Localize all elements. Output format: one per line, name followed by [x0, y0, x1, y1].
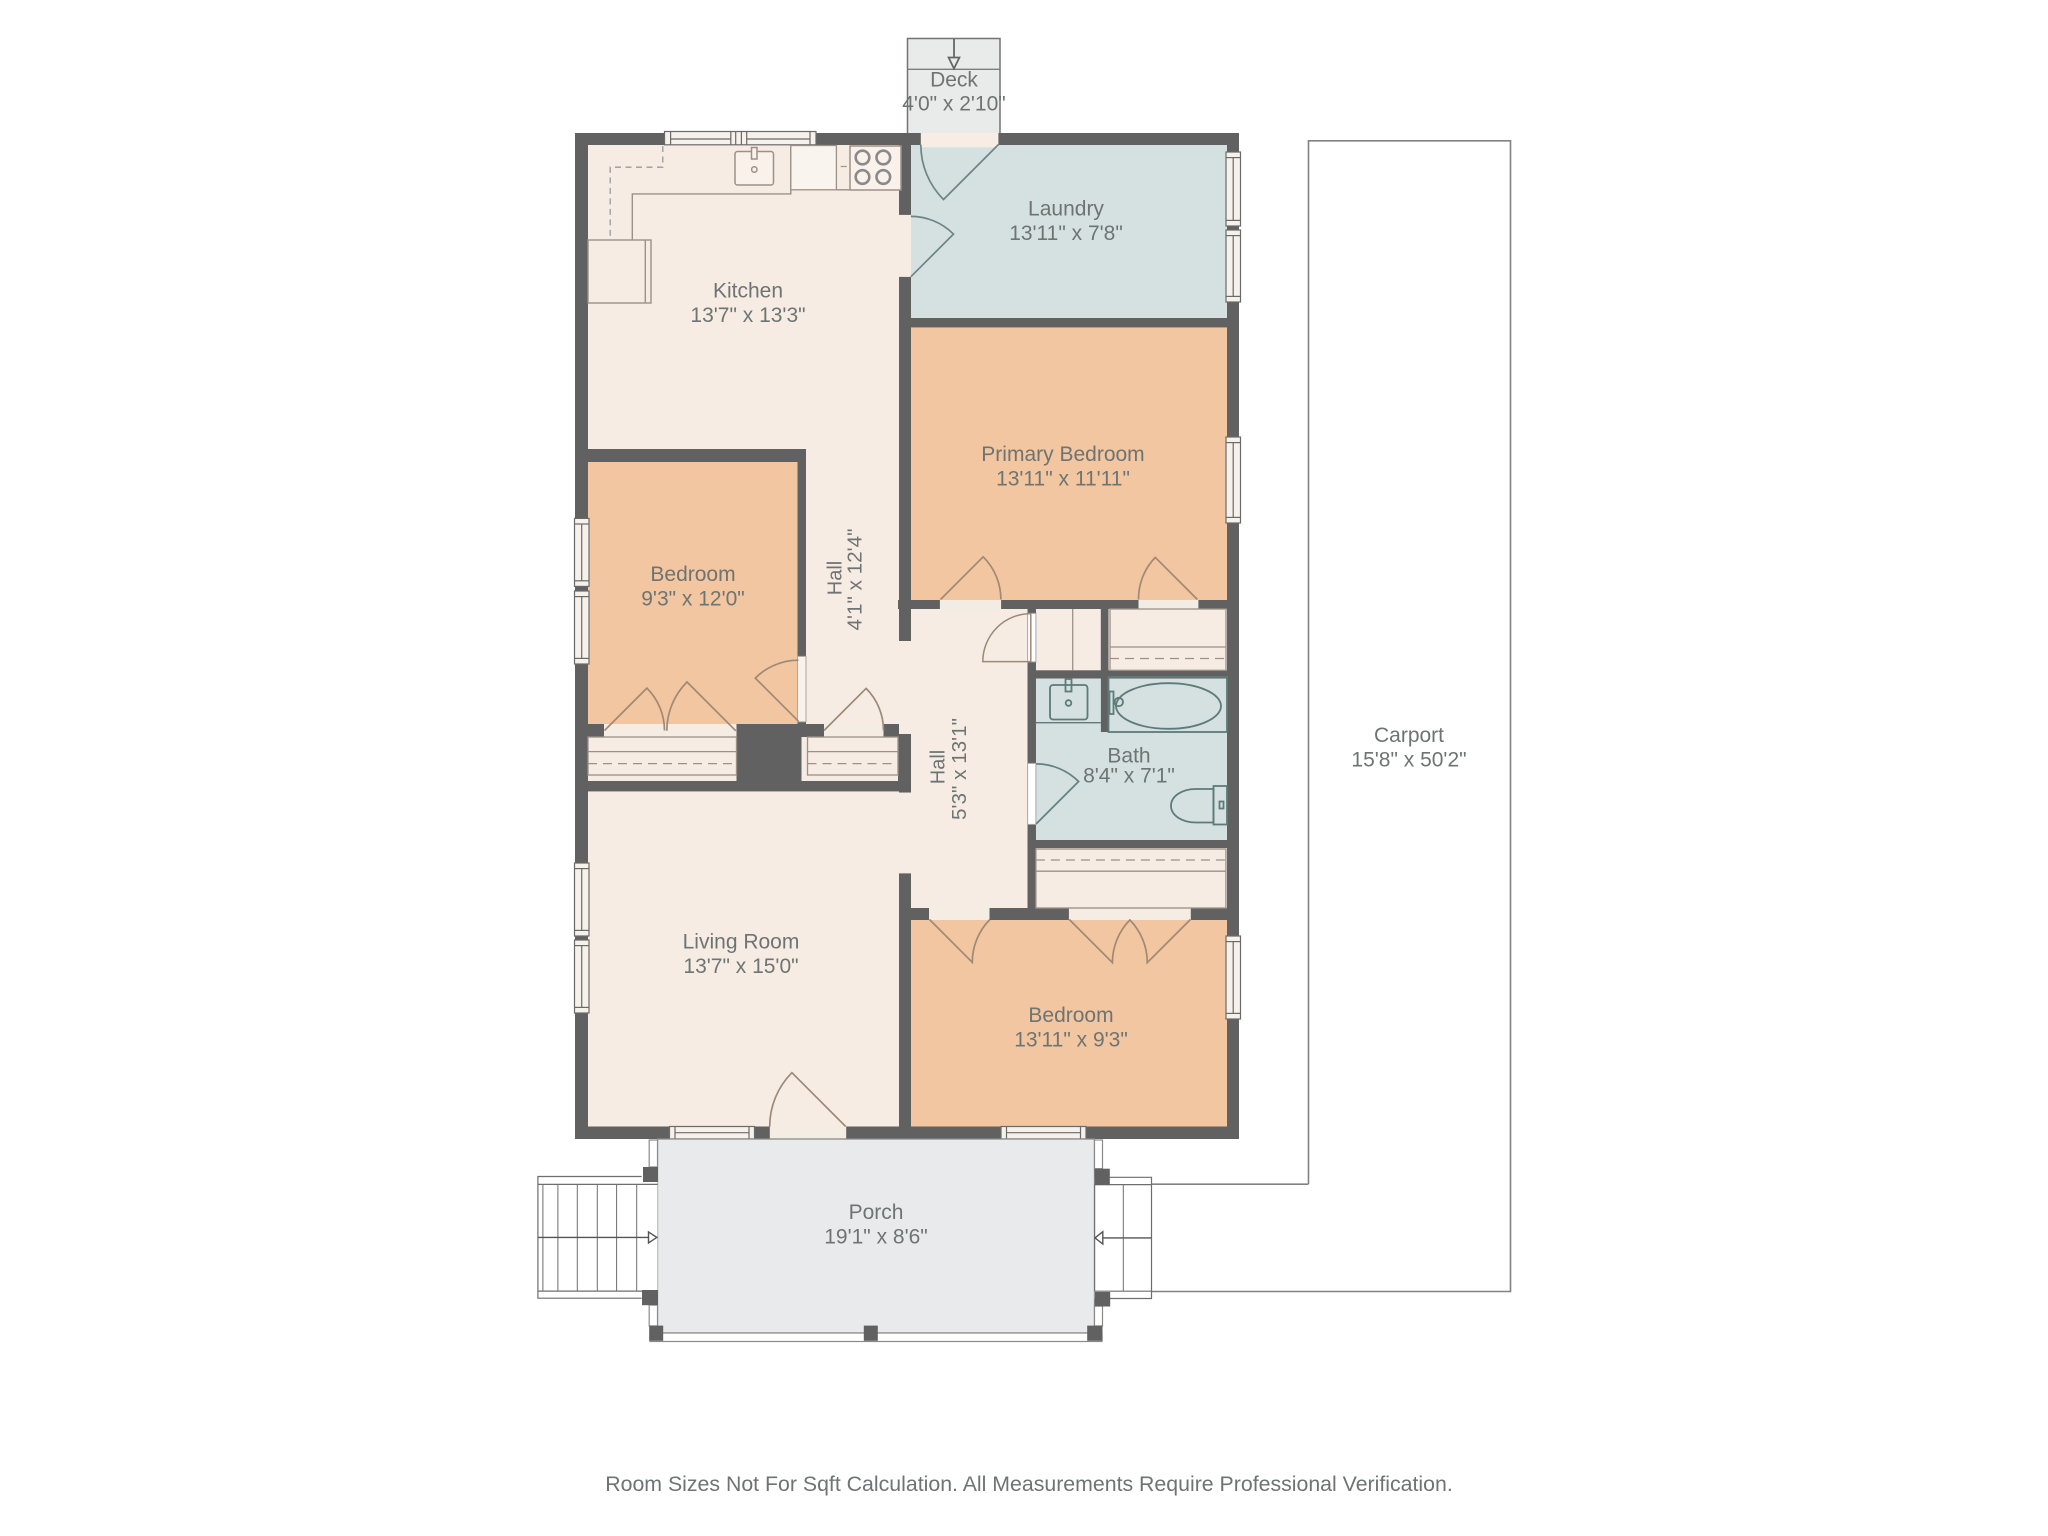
- svg-text:13'11" x 11'11": 13'11" x 11'11": [996, 468, 1130, 491]
- svg-text:13'7" x 15'0": 13'7" x 15'0": [683, 955, 798, 978]
- svg-text:4'1" x 12'4": 4'1" x 12'4": [844, 529, 867, 631]
- svg-text:Laundry: Laundry: [1028, 198, 1104, 221]
- svg-text:19'1" x 8'6": 19'1" x 8'6": [824, 1226, 928, 1249]
- svg-text:13'11" x 7'8": 13'11" x 7'8": [1009, 222, 1123, 245]
- svg-text:13'11" x 9'3": 13'11" x 9'3": [1014, 1029, 1128, 1052]
- svg-text:Bedroom: Bedroom: [1028, 1004, 1113, 1027]
- svg-text:Room Sizes Not For Sqft Calcul: Room Sizes Not For Sqft Calculation. All…: [605, 1472, 1453, 1496]
- svg-text:8'4" x 7'1": 8'4" x 7'1": [1083, 765, 1175, 788]
- svg-text:Bedroom: Bedroom: [650, 563, 735, 586]
- svg-text:Kitchen: Kitchen: [713, 280, 783, 303]
- svg-text:15'8" x 50'2": 15'8" x 50'2": [1351, 749, 1466, 772]
- svg-text:Deck: Deck: [930, 69, 978, 92]
- svg-text:Primary Bedroom: Primary Bedroom: [981, 443, 1144, 466]
- svg-text:Porch: Porch: [849, 1201, 904, 1224]
- svg-text:13'7" x 13'3": 13'7" x 13'3": [690, 304, 805, 327]
- svg-text:5'3" x 13'1": 5'3" x 13'1": [948, 718, 971, 820]
- svg-text:4'0" x 2'10": 4'0" x 2'10": [902, 93, 1006, 116]
- svg-text:Carport: Carport: [1374, 724, 1444, 747]
- svg-text:9'3" x 12'0": 9'3" x 12'0": [641, 588, 745, 611]
- svg-text:Hall: Hall: [927, 750, 949, 784]
- svg-text:Living Room: Living Room: [683, 931, 800, 954]
